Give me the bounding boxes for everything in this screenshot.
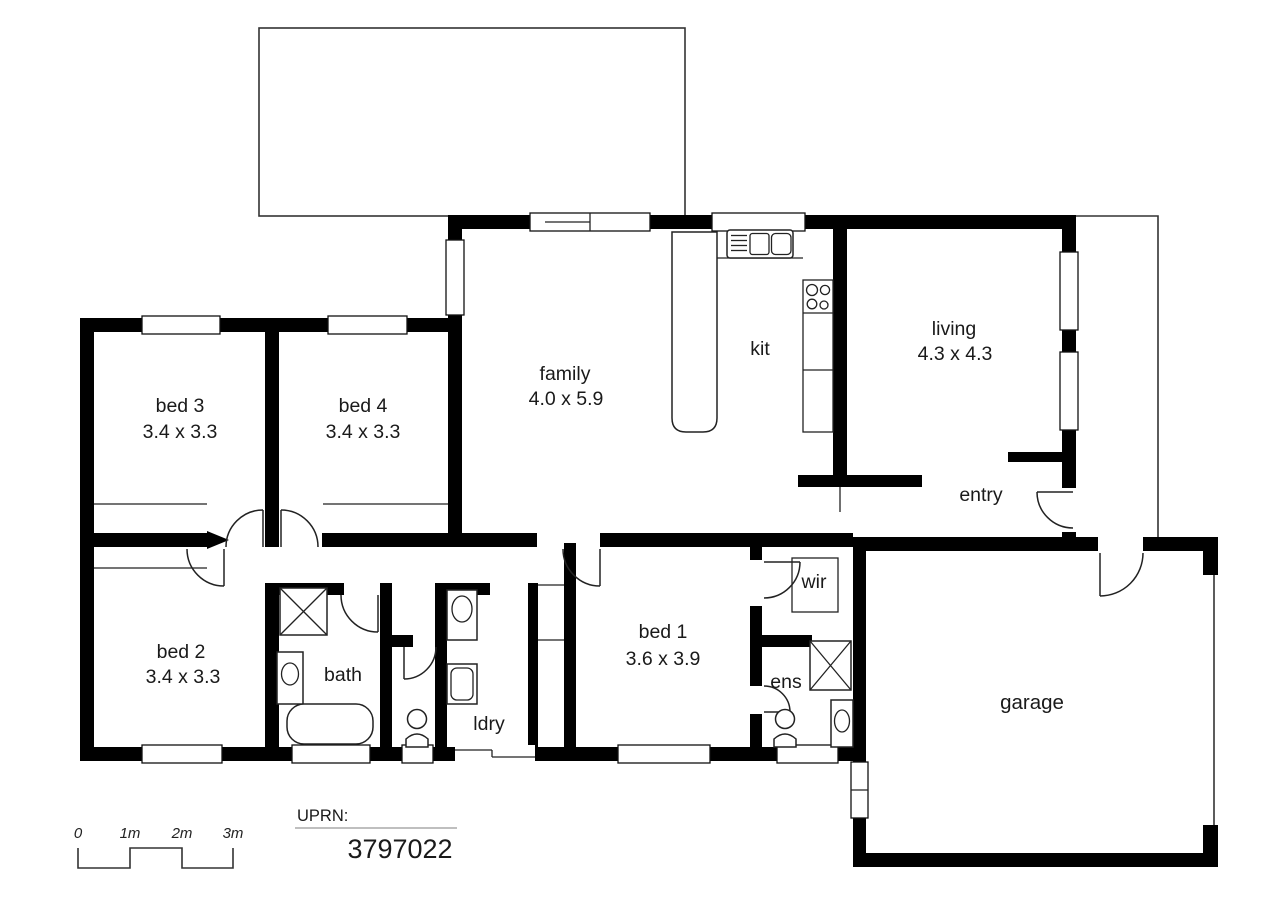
uprn-value: 3797022	[347, 834, 452, 864]
washing-machine	[447, 664, 477, 704]
wc-door	[404, 647, 436, 679]
uprn-block: UPRN: 3797022	[295, 807, 457, 864]
room-label-ldry: ldry	[473, 713, 505, 735]
bath-door	[341, 595, 378, 632]
garage-entry-door	[1100, 553, 1143, 596]
living-window-2	[1060, 352, 1078, 430]
room-label-bed4: bed 4	[339, 395, 388, 417]
room-label-bed1: bed 1	[639, 621, 688, 643]
island-bench	[672, 232, 717, 432]
laundry-sliding-door	[455, 745, 535, 763]
room-label-living: living	[932, 318, 976, 340]
scale-tick-1m: 1m	[120, 825, 141, 842]
bath-vanity	[277, 652, 303, 704]
room-dims-family: 4.0 x 5.9	[529, 388, 604, 410]
front-door	[1037, 492, 1073, 528]
floorplan-page: bed 3 3.4 x 3.3 bed 4 3.4 x 3.3 family 4…	[0, 0, 1286, 907]
room-label-ens: ens	[770, 671, 802, 693]
floorplan-svg: bed 3 3.4 x 3.3 bed 4 3.4 x 3.3 family 4…	[0, 0, 1286, 907]
wir-door	[764, 562, 800, 598]
walls	[80, 215, 1218, 867]
scale-tick-2m: 2m	[171, 825, 193, 842]
scale-tick-3m: 3m	[223, 825, 244, 842]
laundry-trough	[447, 590, 477, 640]
room-dims-bed2: 3.4 x 3.3	[146, 666, 221, 688]
windows	[142, 213, 1078, 818]
room-label-garage: garage	[1000, 691, 1064, 714]
bath-window	[292, 745, 370, 763]
room-label-kit: kit	[750, 338, 770, 360]
room-dims-bed4: 3.4 x 3.3	[326, 421, 401, 443]
kitchen-window	[712, 213, 805, 231]
ens-shower	[810, 641, 851, 690]
room-dims-bed3: 3.4 x 3.3	[143, 421, 218, 443]
scale-bar: 0 1m 2m 3m	[74, 825, 244, 868]
pergola-outline	[259, 28, 685, 216]
room-label-family: family	[540, 363, 591, 385]
bed1-window	[618, 745, 710, 763]
room-label-bed3: bed 3	[156, 395, 205, 417]
scale-tick-0: 0	[74, 825, 83, 842]
room-label-wir: wir	[801, 571, 827, 593]
uprn-label: UPRN:	[297, 807, 348, 825]
ens-vanity	[831, 700, 853, 747]
kitchen-sink	[727, 230, 793, 258]
room-label-bath: bath	[324, 664, 362, 686]
room-label-bed2: bed 2	[157, 641, 206, 663]
bathtub	[287, 704, 373, 744]
porch-outline	[1076, 216, 1158, 537]
room-dims-bed1: 3.6 x 3.9	[626, 648, 701, 670]
living-window-1	[1060, 252, 1078, 330]
bath-shower	[280, 588, 327, 635]
bed3-door	[226, 510, 263, 547]
bed4-window	[328, 316, 407, 334]
cooktop	[807, 285, 830, 310]
bed3-window	[142, 316, 220, 334]
wc-toilet	[406, 710, 428, 748]
ens-toilet	[774, 710, 796, 748]
bed2-window	[142, 745, 222, 763]
room-dims-living: 4.3 x 4.3	[918, 343, 993, 365]
bed4-door	[281, 510, 318, 547]
ens-fixtures	[774, 641, 853, 747]
room-label-entry: entry	[959, 484, 1003, 506]
kitchen-fixtures	[672, 230, 833, 432]
family-side-window	[446, 240, 464, 315]
